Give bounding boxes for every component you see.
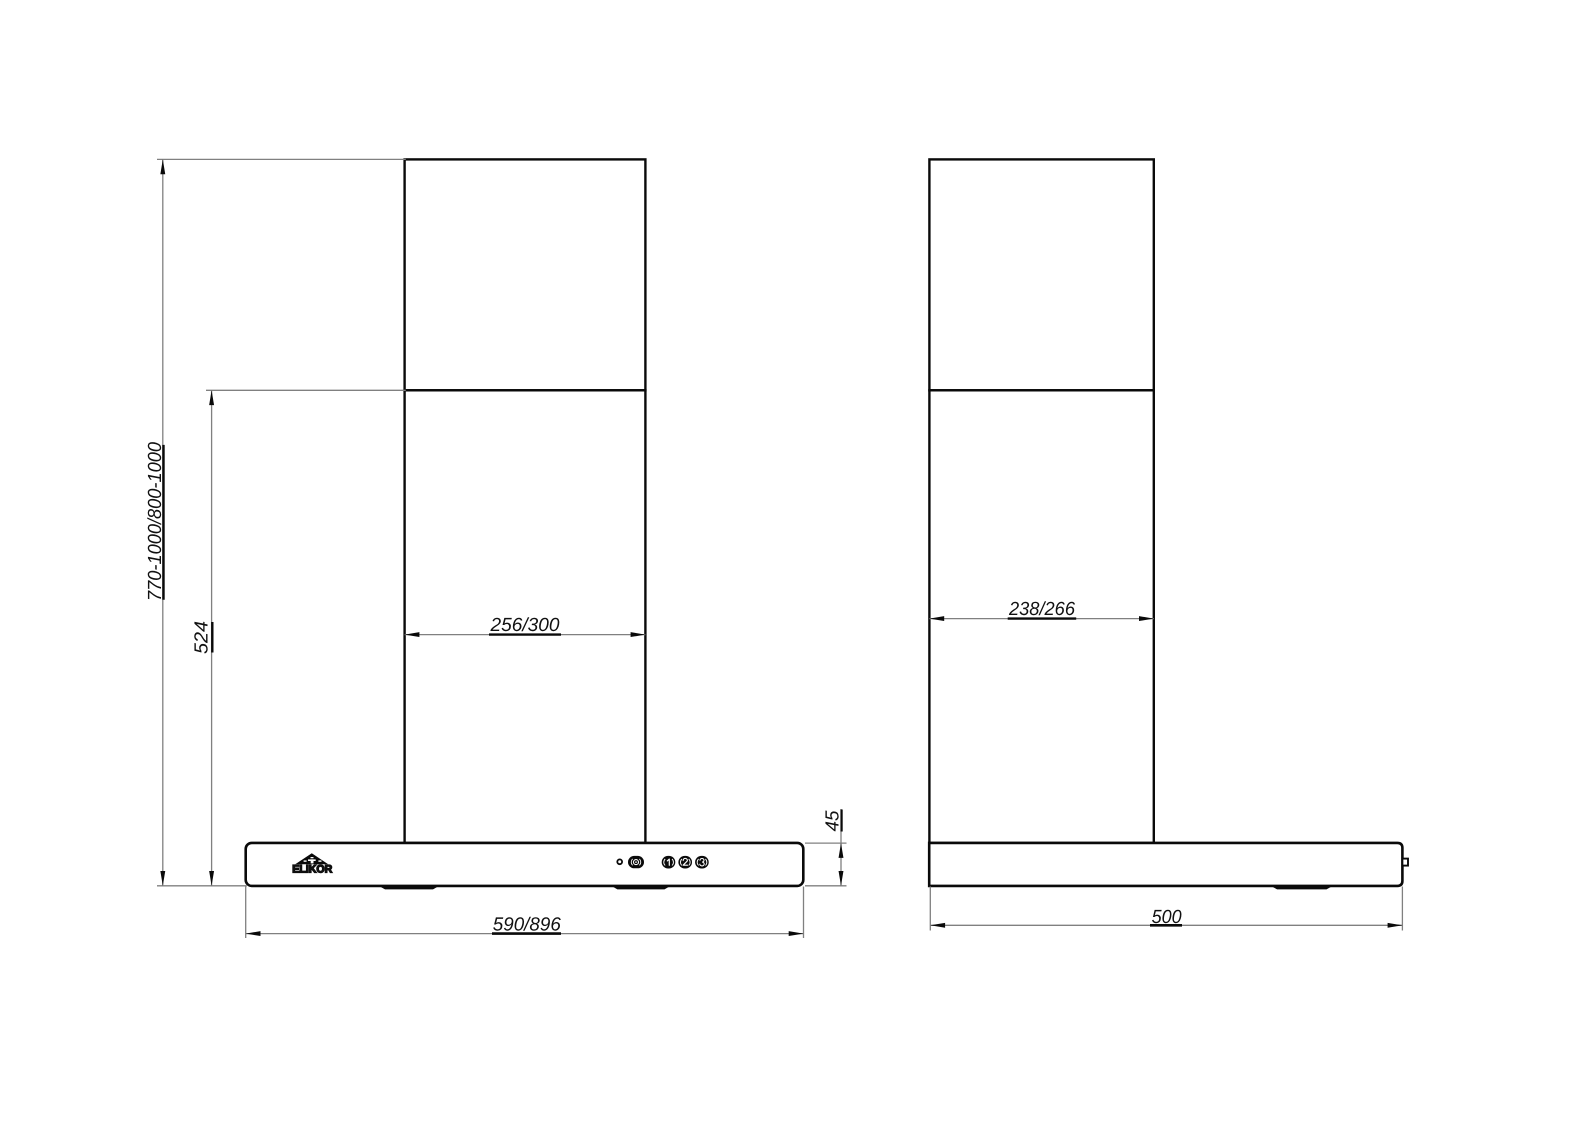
svg-text:256/300: 256/300	[489, 615, 559, 636]
svg-text:770-1000/800-1000: 770-1000/800-1000	[145, 442, 166, 601]
svg-text:524: 524	[192, 621, 213, 654]
svg-text:45: 45	[823, 810, 844, 831]
svg-text:590/896: 590/896	[493, 914, 561, 935]
svg-text:238/266: 238/266	[1008, 599, 1075, 620]
svg-text:500: 500	[1152, 907, 1182, 928]
svg-text:ELIKOR: ELIKOR	[292, 864, 332, 876]
